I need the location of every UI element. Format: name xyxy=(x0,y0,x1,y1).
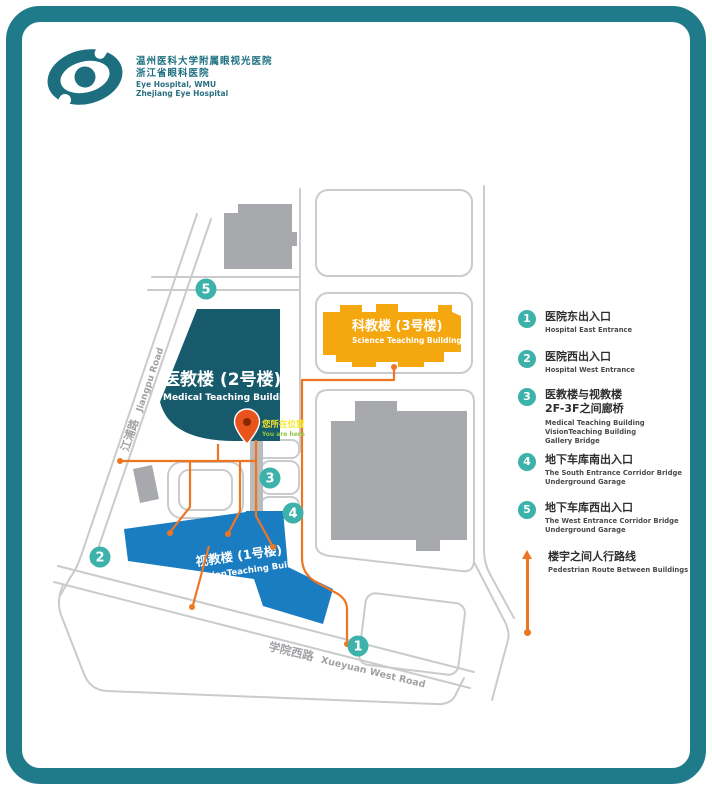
legend-item-3: 3 医教楼与视教楼 2F-3F之间廊桥 Medical Teaching Bui… xyxy=(518,388,645,446)
legend-route-en: Pedestrian Route Between Buildings xyxy=(548,566,688,575)
science-building-label-en: Science Teaching Building xyxy=(352,336,462,345)
legend-en-5b: Underground Garage xyxy=(545,526,679,535)
medical-building-label-en: Medical Teaching Building xyxy=(163,393,295,403)
svg-text:5: 5 xyxy=(201,283,210,298)
legend-title-3b: 2F-3F之间廊桥 xyxy=(545,402,645,416)
legend-en-3b: VisionTeaching Building xyxy=(545,428,645,437)
legend-title-3a: 医教楼与视教楼 xyxy=(545,388,645,402)
legend-title-2: 医院西出入口 xyxy=(545,350,635,364)
legend-title-5: 地下车库西出入口 xyxy=(545,501,679,515)
legend-title-1: 医院东出入口 xyxy=(545,310,632,324)
legend-title-4: 地下车库南出入口 xyxy=(545,453,682,467)
map-marker-2: 2 xyxy=(90,547,111,568)
map-marker-3: 3 xyxy=(260,468,281,489)
legend-marker-5: 5 xyxy=(518,501,536,519)
legend-en-5a: The West Entrance Corridor Bridge xyxy=(545,517,679,526)
svg-text:2: 2 xyxy=(95,551,104,566)
legend-en-4a: The South Entrance Corridor Bridge xyxy=(545,469,682,478)
legend-en-3c: Gallery Bridge xyxy=(545,437,645,446)
legend-route-title: 楼宇之间人行路线 xyxy=(548,550,688,564)
pin-label-zh: 您所在位置 xyxy=(262,419,305,430)
hospital-campus-map-page: { "colors": { "frame_teal": "#1F7A8A", "… xyxy=(0,0,712,790)
map-marker-1: 1 xyxy=(348,636,369,657)
route-arrow-icon xyxy=(518,550,536,636)
building-east-gray xyxy=(331,401,467,551)
building-small-west-gray xyxy=(133,465,159,503)
science-building-label-zh: 科教楼 (3号楼) xyxy=(352,318,442,334)
legend-marker-4: 4 xyxy=(518,453,536,471)
legend-item-4: 4 地下车库南出入口 The South Entrance Corridor B… xyxy=(518,453,682,488)
svg-text:4: 4 xyxy=(288,507,297,522)
legend-marker-1: 1 xyxy=(518,310,536,328)
map-legend: 1 医院东出入口 Hospital East Entrance 2 医院西出入口… xyxy=(518,0,703,790)
legend-marker-2: 2 xyxy=(518,350,536,368)
medical-building-label-zh: 医教楼 (2号楼) xyxy=(163,369,281,390)
building-north-gray xyxy=(224,204,297,269)
legend-item-1: 1 医院东出入口 Hospital East Entrance xyxy=(518,310,632,335)
svg-text:1: 1 xyxy=(353,640,362,655)
legend-en-2: Hospital West Entrance xyxy=(545,366,635,375)
legend-item-2: 2 医院西出入口 Hospital West Entrance xyxy=(518,350,635,375)
legend-item-route: 楼宇之间人行路线 Pedestrian Route Between Buildi… xyxy=(518,550,688,636)
building-science-teaching: 科教楼 (3号楼) Science Teaching Building xyxy=(323,304,462,367)
legend-en-3a: Medical Teaching Building xyxy=(545,419,645,428)
pin-label-en: You are here xyxy=(261,431,305,438)
legend-en-4b: Underground Garage xyxy=(545,478,682,487)
legend-en-1: Hospital East Entrance xyxy=(545,326,632,335)
road-label-west: 江浦路 Jiangpu Road xyxy=(118,345,167,453)
legend-item-5: 5 地下车库西出入口 The West Entrance Corridor Br… xyxy=(518,501,679,536)
map-marker-4: 4 xyxy=(283,503,304,524)
map-marker-5: 5 xyxy=(196,279,217,300)
legend-marker-3: 3 xyxy=(518,388,536,406)
svg-text:3: 3 xyxy=(265,472,274,487)
